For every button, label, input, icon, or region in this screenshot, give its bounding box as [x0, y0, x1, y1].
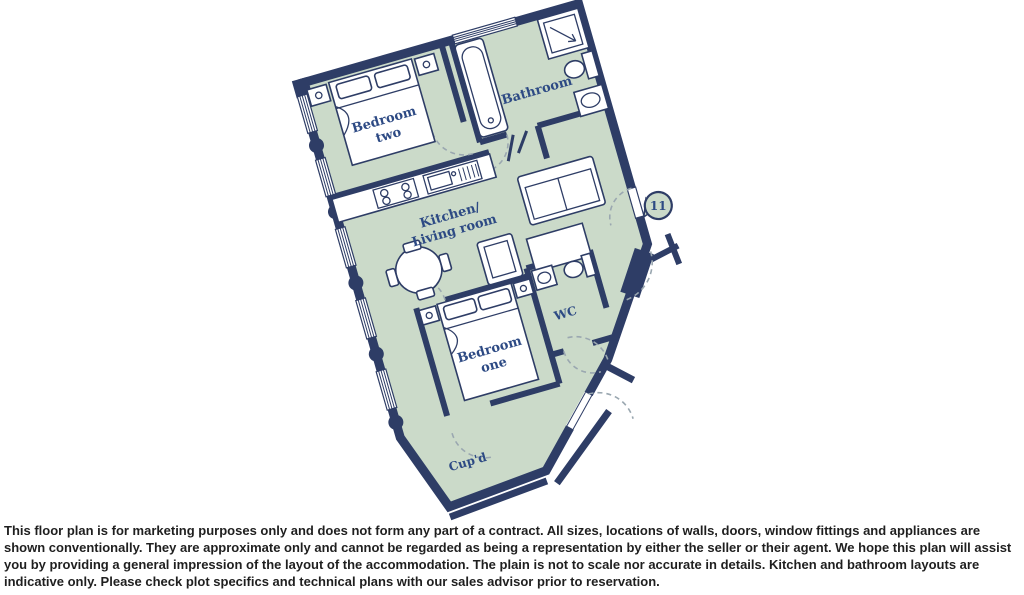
page: Bedroom two Bathroom Kitchen/ Living roo… — [0, 0, 1024, 595]
plot-number: 11 — [650, 199, 667, 213]
disclaimer-text: This floor plan is for marketing purpose… — [4, 522, 1020, 591]
floor-plan: Bedroom two Bathroom Kitchen/ Living roo… — [0, 0, 1024, 522]
